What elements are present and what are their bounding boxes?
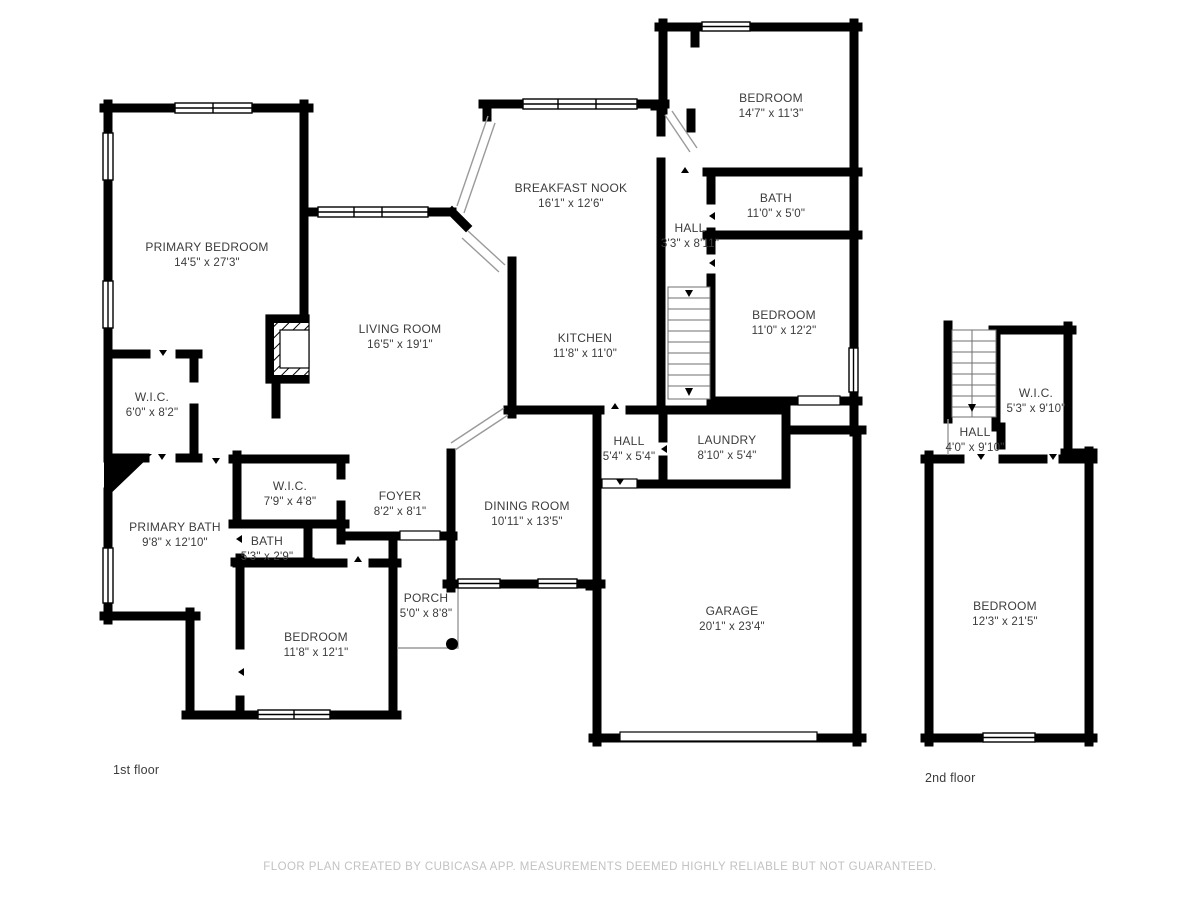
footer-disclaimer: FLOOR PLAN CREATED BY CUBICASA APP. MEAS… bbox=[0, 861, 1200, 873]
room-dims: 6'0" x 8'2" bbox=[126, 405, 178, 421]
room-dims: 7'9" x 4'8" bbox=[264, 494, 316, 510]
room-name: W.I.C. bbox=[264, 478, 316, 494]
room-label-bath-top-right: BATH11'0" x 5'0" bbox=[747, 190, 805, 222]
room-name: BATH bbox=[747, 190, 805, 206]
room-dims: 5'0" x 8'8" bbox=[400, 606, 452, 622]
room-dims: 20'1" x 23'4" bbox=[699, 619, 765, 635]
room-dims: 9'8" x 12'10" bbox=[129, 535, 221, 551]
floor-plan-drawing bbox=[0, 0, 1200, 900]
room-label-hall-center: HALL5'4" x 5'4" bbox=[603, 433, 655, 465]
room-dims: 11'8" x 12'1" bbox=[284, 645, 349, 661]
room-label-hall-right: HALL3'3" x 8'11" bbox=[661, 220, 719, 252]
room-name: HALL bbox=[603, 433, 655, 449]
room-name: BEDROOM bbox=[972, 598, 1038, 614]
room-dims: 4'0" x 9'10" bbox=[945, 440, 1004, 456]
room-label-living-room: LIVING ROOM16'5" x 19'1" bbox=[359, 321, 442, 353]
fireplace-icon bbox=[266, 315, 309, 383]
room-label-kitchen: KITCHEN11'8" x 11'0" bbox=[553, 330, 617, 362]
room-dims: 8'2" x 8'1" bbox=[374, 504, 426, 520]
room-dims: 12'3" x 21'5" bbox=[972, 614, 1038, 630]
second-floor-caption: 2nd floor bbox=[925, 771, 975, 785]
room-label-laundry: LAUNDRY8'10" x 5'4" bbox=[697, 432, 756, 464]
room-name: W.I.C. bbox=[1006, 385, 1065, 401]
room-dims: 11'8" x 11'0" bbox=[553, 346, 617, 362]
room-dims: 5'3" x 2'9" bbox=[241, 549, 293, 565]
room-name: GARAGE bbox=[699, 603, 765, 619]
room-dims: 14'7" x 11'3" bbox=[739, 106, 804, 122]
room-dims: 5'3" x 9'10" bbox=[1006, 401, 1065, 417]
room-dims: 5'4" x 5'4" bbox=[603, 449, 655, 465]
room-name: BEDROOM bbox=[284, 629, 349, 645]
room-label-wic-2nd-floor: W.I.C.5'3" x 9'10" bbox=[1006, 385, 1065, 417]
room-label-garage: GARAGE20'1" x 23'4" bbox=[699, 603, 765, 635]
room-label-breakfast-nook: BREAKFAST NOOK16'1" x 12'6" bbox=[515, 180, 628, 212]
room-label-bedroom-bottom-left: BEDROOM11'8" x 12'1" bbox=[284, 629, 349, 661]
stairs-second-floor bbox=[952, 330, 996, 417]
room-dims: 11'0" x 5'0" bbox=[747, 206, 805, 222]
room-label-bath-small: BATH5'3" x 2'9" bbox=[241, 533, 293, 565]
room-dims: 11'0" x 12'2" bbox=[752, 323, 817, 339]
room-name: BEDROOM bbox=[739, 90, 804, 106]
room-dims: 10'11" x 13'5" bbox=[484, 514, 569, 530]
room-label-bedroom-2nd-floor: BEDROOM12'3" x 21'5" bbox=[972, 598, 1038, 630]
room-dims: 14'5" x 27'3" bbox=[145, 255, 268, 271]
room-name: FOYER bbox=[374, 488, 426, 504]
room-label-wic-second: W.I.C.7'9" x 4'8" bbox=[264, 478, 316, 510]
room-label-primary-bath: PRIMARY BATH9'8" x 12'10" bbox=[129, 519, 221, 551]
room-label-bedroom-mid-right: BEDROOM11'0" x 12'2" bbox=[752, 307, 817, 339]
porch-column bbox=[446, 638, 458, 650]
room-name: W.I.C. bbox=[126, 389, 178, 405]
room-dims: 16'5" x 19'1" bbox=[359, 337, 442, 353]
room-name: KITCHEN bbox=[553, 330, 617, 346]
room-dims: 3'3" x 8'11" bbox=[661, 236, 719, 252]
room-name: PRIMARY BEDROOM bbox=[145, 239, 268, 255]
room-name: LIVING ROOM bbox=[359, 321, 442, 337]
room-name: HALL bbox=[945, 424, 1004, 440]
room-name: PRIMARY BATH bbox=[129, 519, 221, 535]
door-tick-marks bbox=[158, 167, 1093, 676]
first-floor-caption: 1st floor bbox=[113, 763, 159, 777]
walls bbox=[104, 23, 1093, 742]
room-dims: 16'1" x 12'6" bbox=[515, 196, 628, 212]
room-name: PORCH bbox=[400, 590, 452, 606]
room-name: BEDROOM bbox=[752, 307, 817, 323]
floor-plan-page: PRIMARY BEDROOM14'5" x 27'3" BREAKFAST N… bbox=[0, 0, 1200, 900]
room-name: BREAKFAST NOOK bbox=[515, 180, 628, 196]
room-name: DINING ROOM bbox=[484, 498, 569, 514]
room-label-primary-bedroom: PRIMARY BEDROOM14'5" x 27'3" bbox=[145, 239, 268, 271]
stairs-first-floor bbox=[668, 287, 710, 399]
room-label-bedroom-top-right: BEDROOM14'7" x 11'3" bbox=[739, 90, 804, 122]
room-label-porch: PORCH5'0" x 8'8" bbox=[400, 590, 452, 622]
room-dims: 8'10" x 5'4" bbox=[697, 448, 756, 464]
room-label-wic-primary: W.I.C.6'0" x 8'2" bbox=[126, 389, 178, 421]
room-label-dining-room: DINING ROOM10'11" x 13'5" bbox=[484, 498, 569, 530]
room-name: HALL bbox=[661, 220, 719, 236]
room-name: LAUNDRY bbox=[697, 432, 756, 448]
room-label-foyer: FOYER8'2" x 8'1" bbox=[374, 488, 426, 520]
room-label-hall-2nd-floor: HALL4'0" x 9'10" bbox=[945, 424, 1004, 456]
room-name: BATH bbox=[241, 533, 293, 549]
